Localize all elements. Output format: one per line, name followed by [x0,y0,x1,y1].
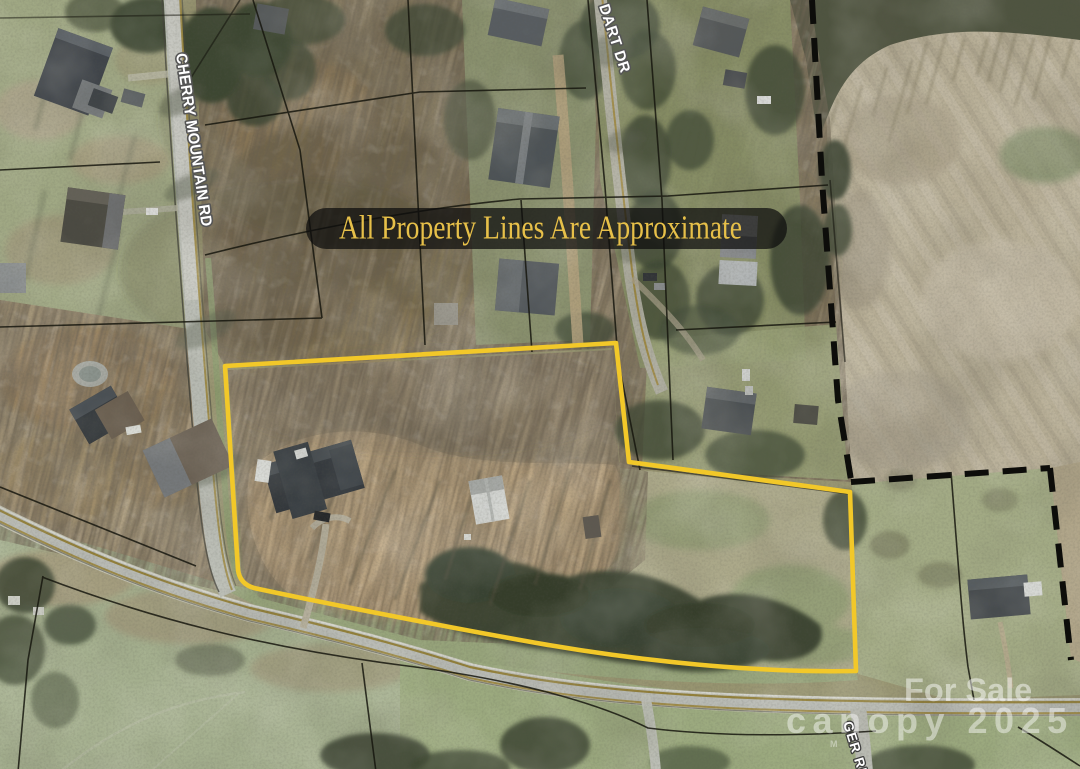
svg-text:canopy 2025: canopy 2025 [786,700,1074,741]
svg-text:M: M [830,739,838,749]
svg-text:All Property Lines Are Approxi: All Property Lines Are Approximate [339,210,742,247]
